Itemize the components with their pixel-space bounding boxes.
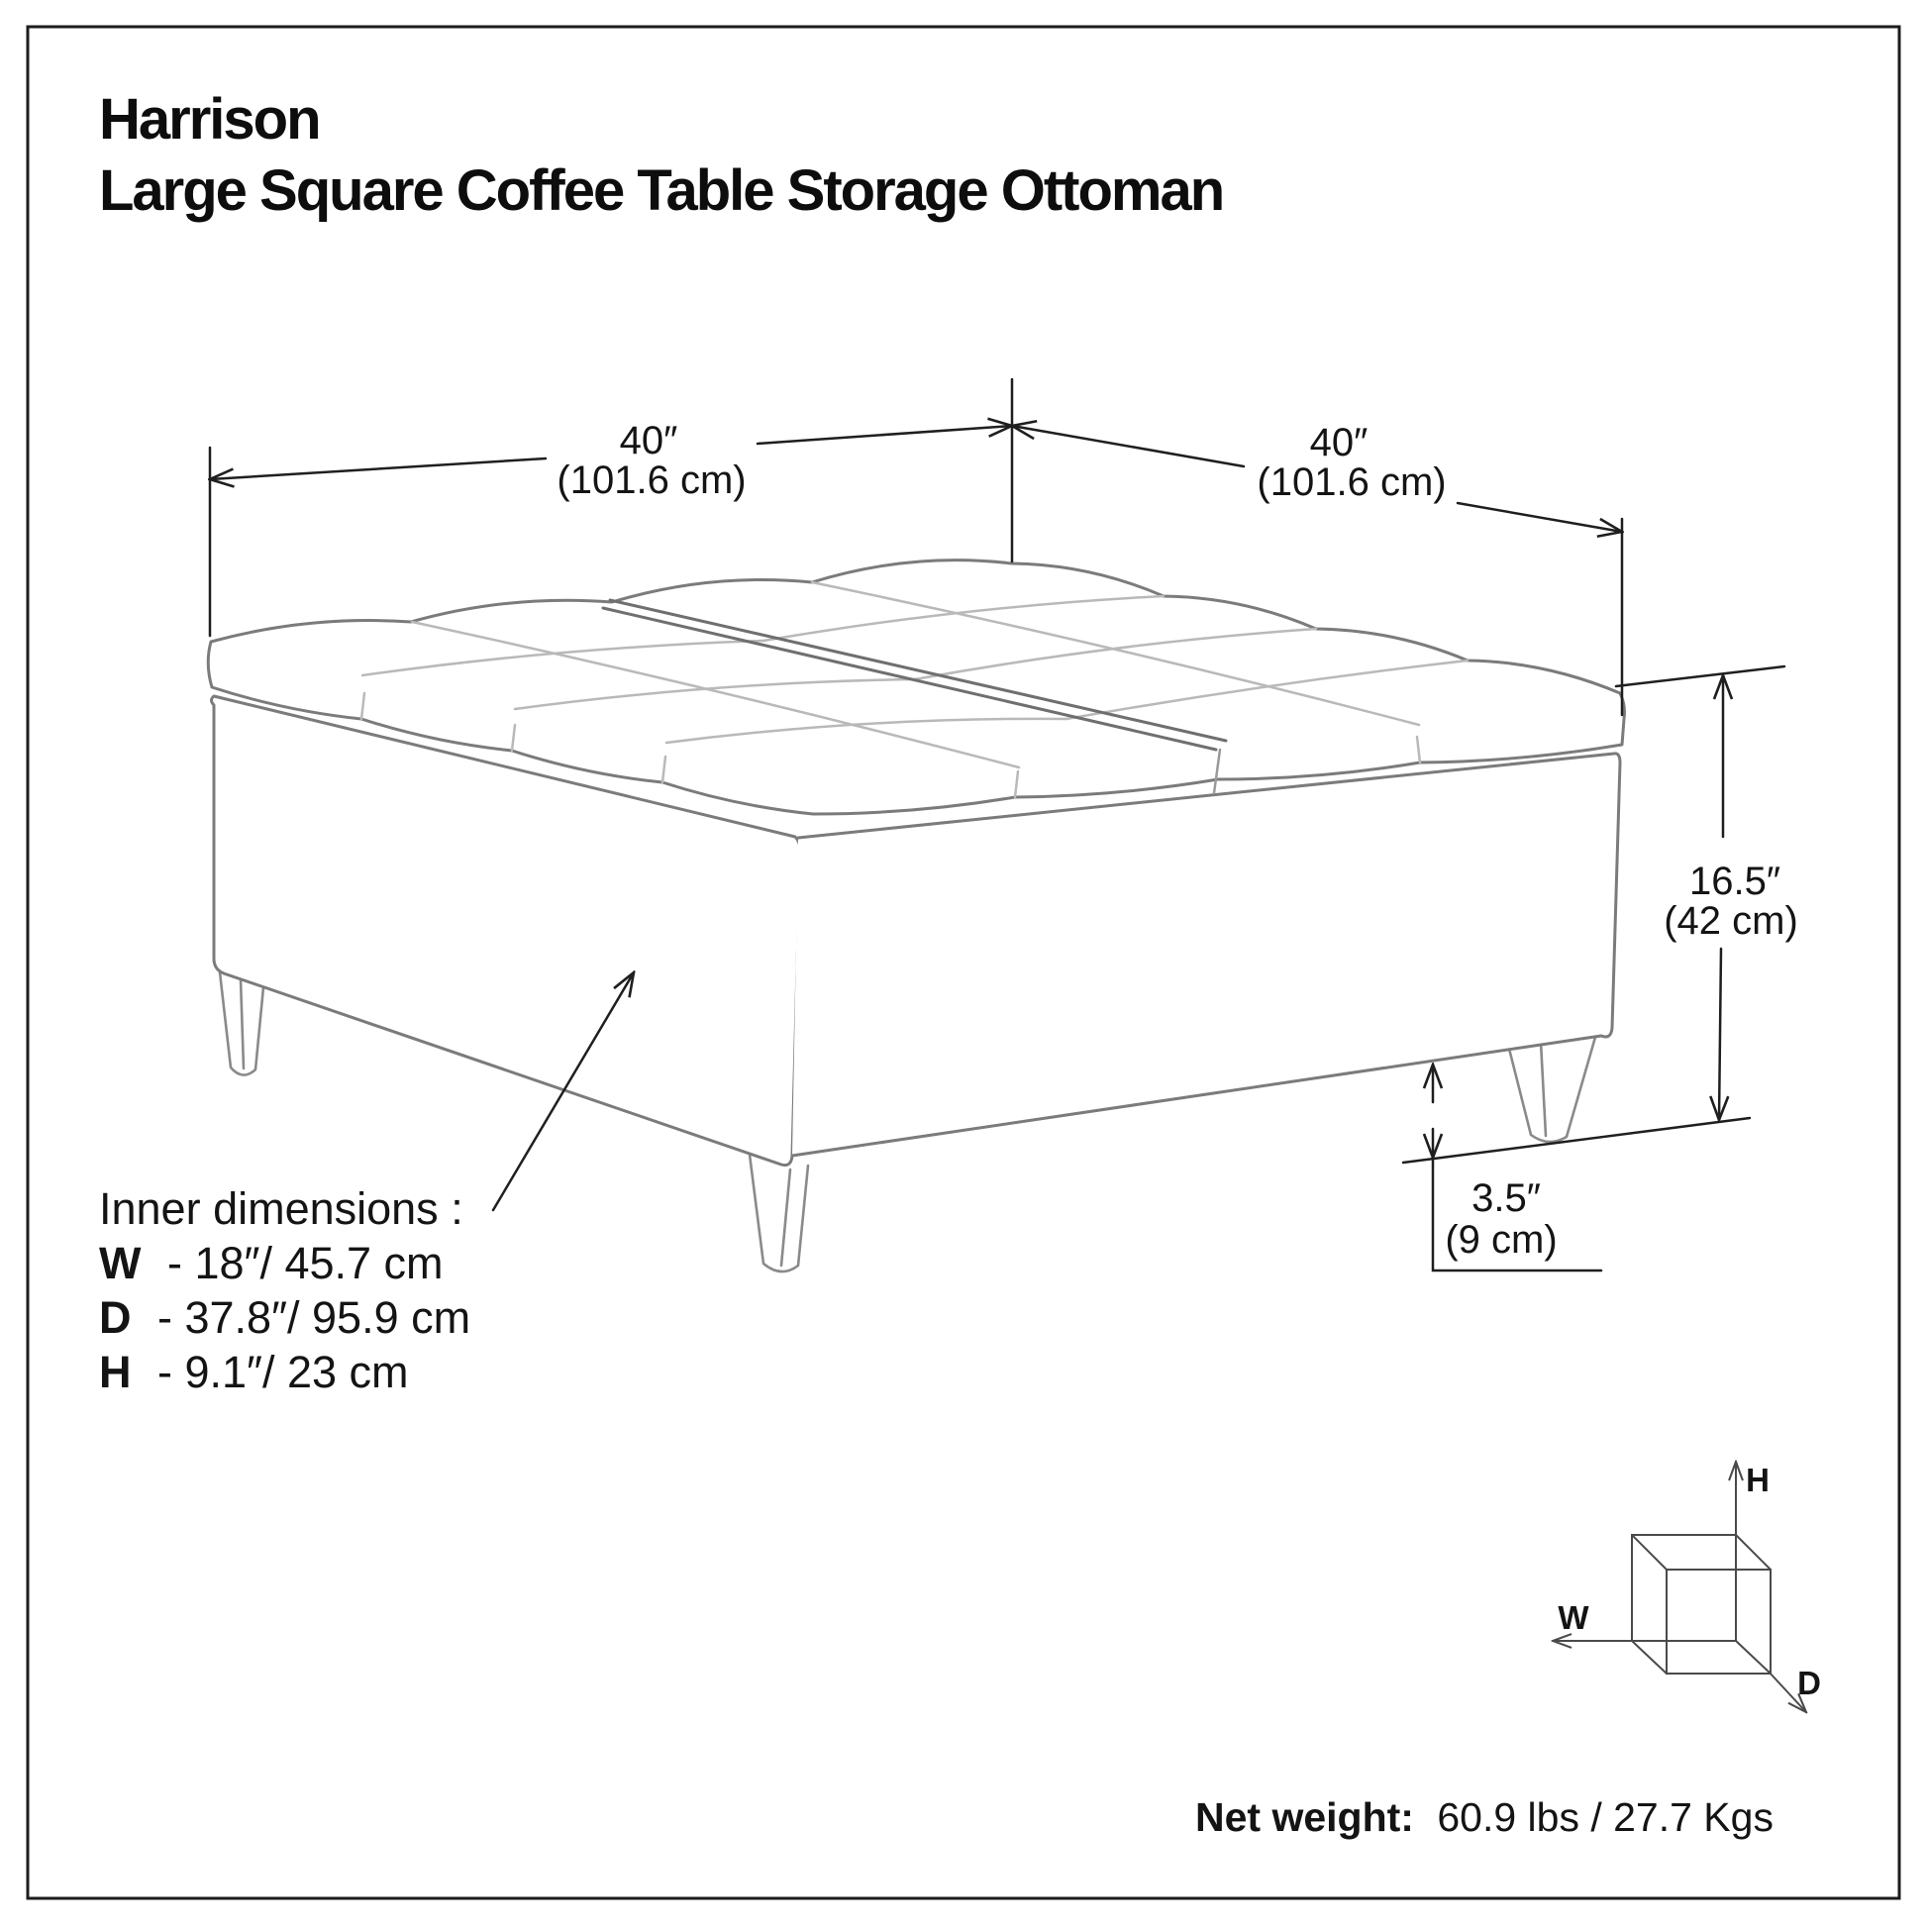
inner-dims-heading: Inner dimensions :: [99, 1183, 463, 1234]
title-line-1: Harrison: [99, 87, 320, 152]
width-right-value: 40″: [1310, 421, 1369, 464]
spec-sheet: Harrison Large Square Coffee Table Stora…: [0, 0, 1927, 1927]
width-left-value: 40″: [620, 419, 678, 462]
width-left-metric: (101.6 cm): [557, 458, 746, 502]
inner-dims-row-w: W - 18″/ 45.7 cm: [99, 1238, 444, 1288]
height-metric: (42 cm): [1664, 899, 1798, 943]
axis-label-d: D: [1797, 1665, 1821, 1701]
leg-height-value: 3.5″: [1471, 1176, 1541, 1220]
axis-label-h: H: [1746, 1462, 1770, 1498]
title-line-2: Large Square Coffee Table Storage Ottoma…: [99, 158, 1223, 223]
diagram-canvas: Harrison Large Square Coffee Table Stora…: [0, 0, 1927, 1927]
height-value: 16.5″: [1689, 860, 1780, 903]
leg-height-metric: (9 cm): [1445, 1218, 1557, 1262]
net-weight: Net weight: 60.9 lbs / 27.7 Kgs: [1195, 1794, 1774, 1840]
axis-label-w: W: [1558, 1599, 1589, 1636]
width-right-metric: (101.6 cm): [1257, 460, 1446, 504]
